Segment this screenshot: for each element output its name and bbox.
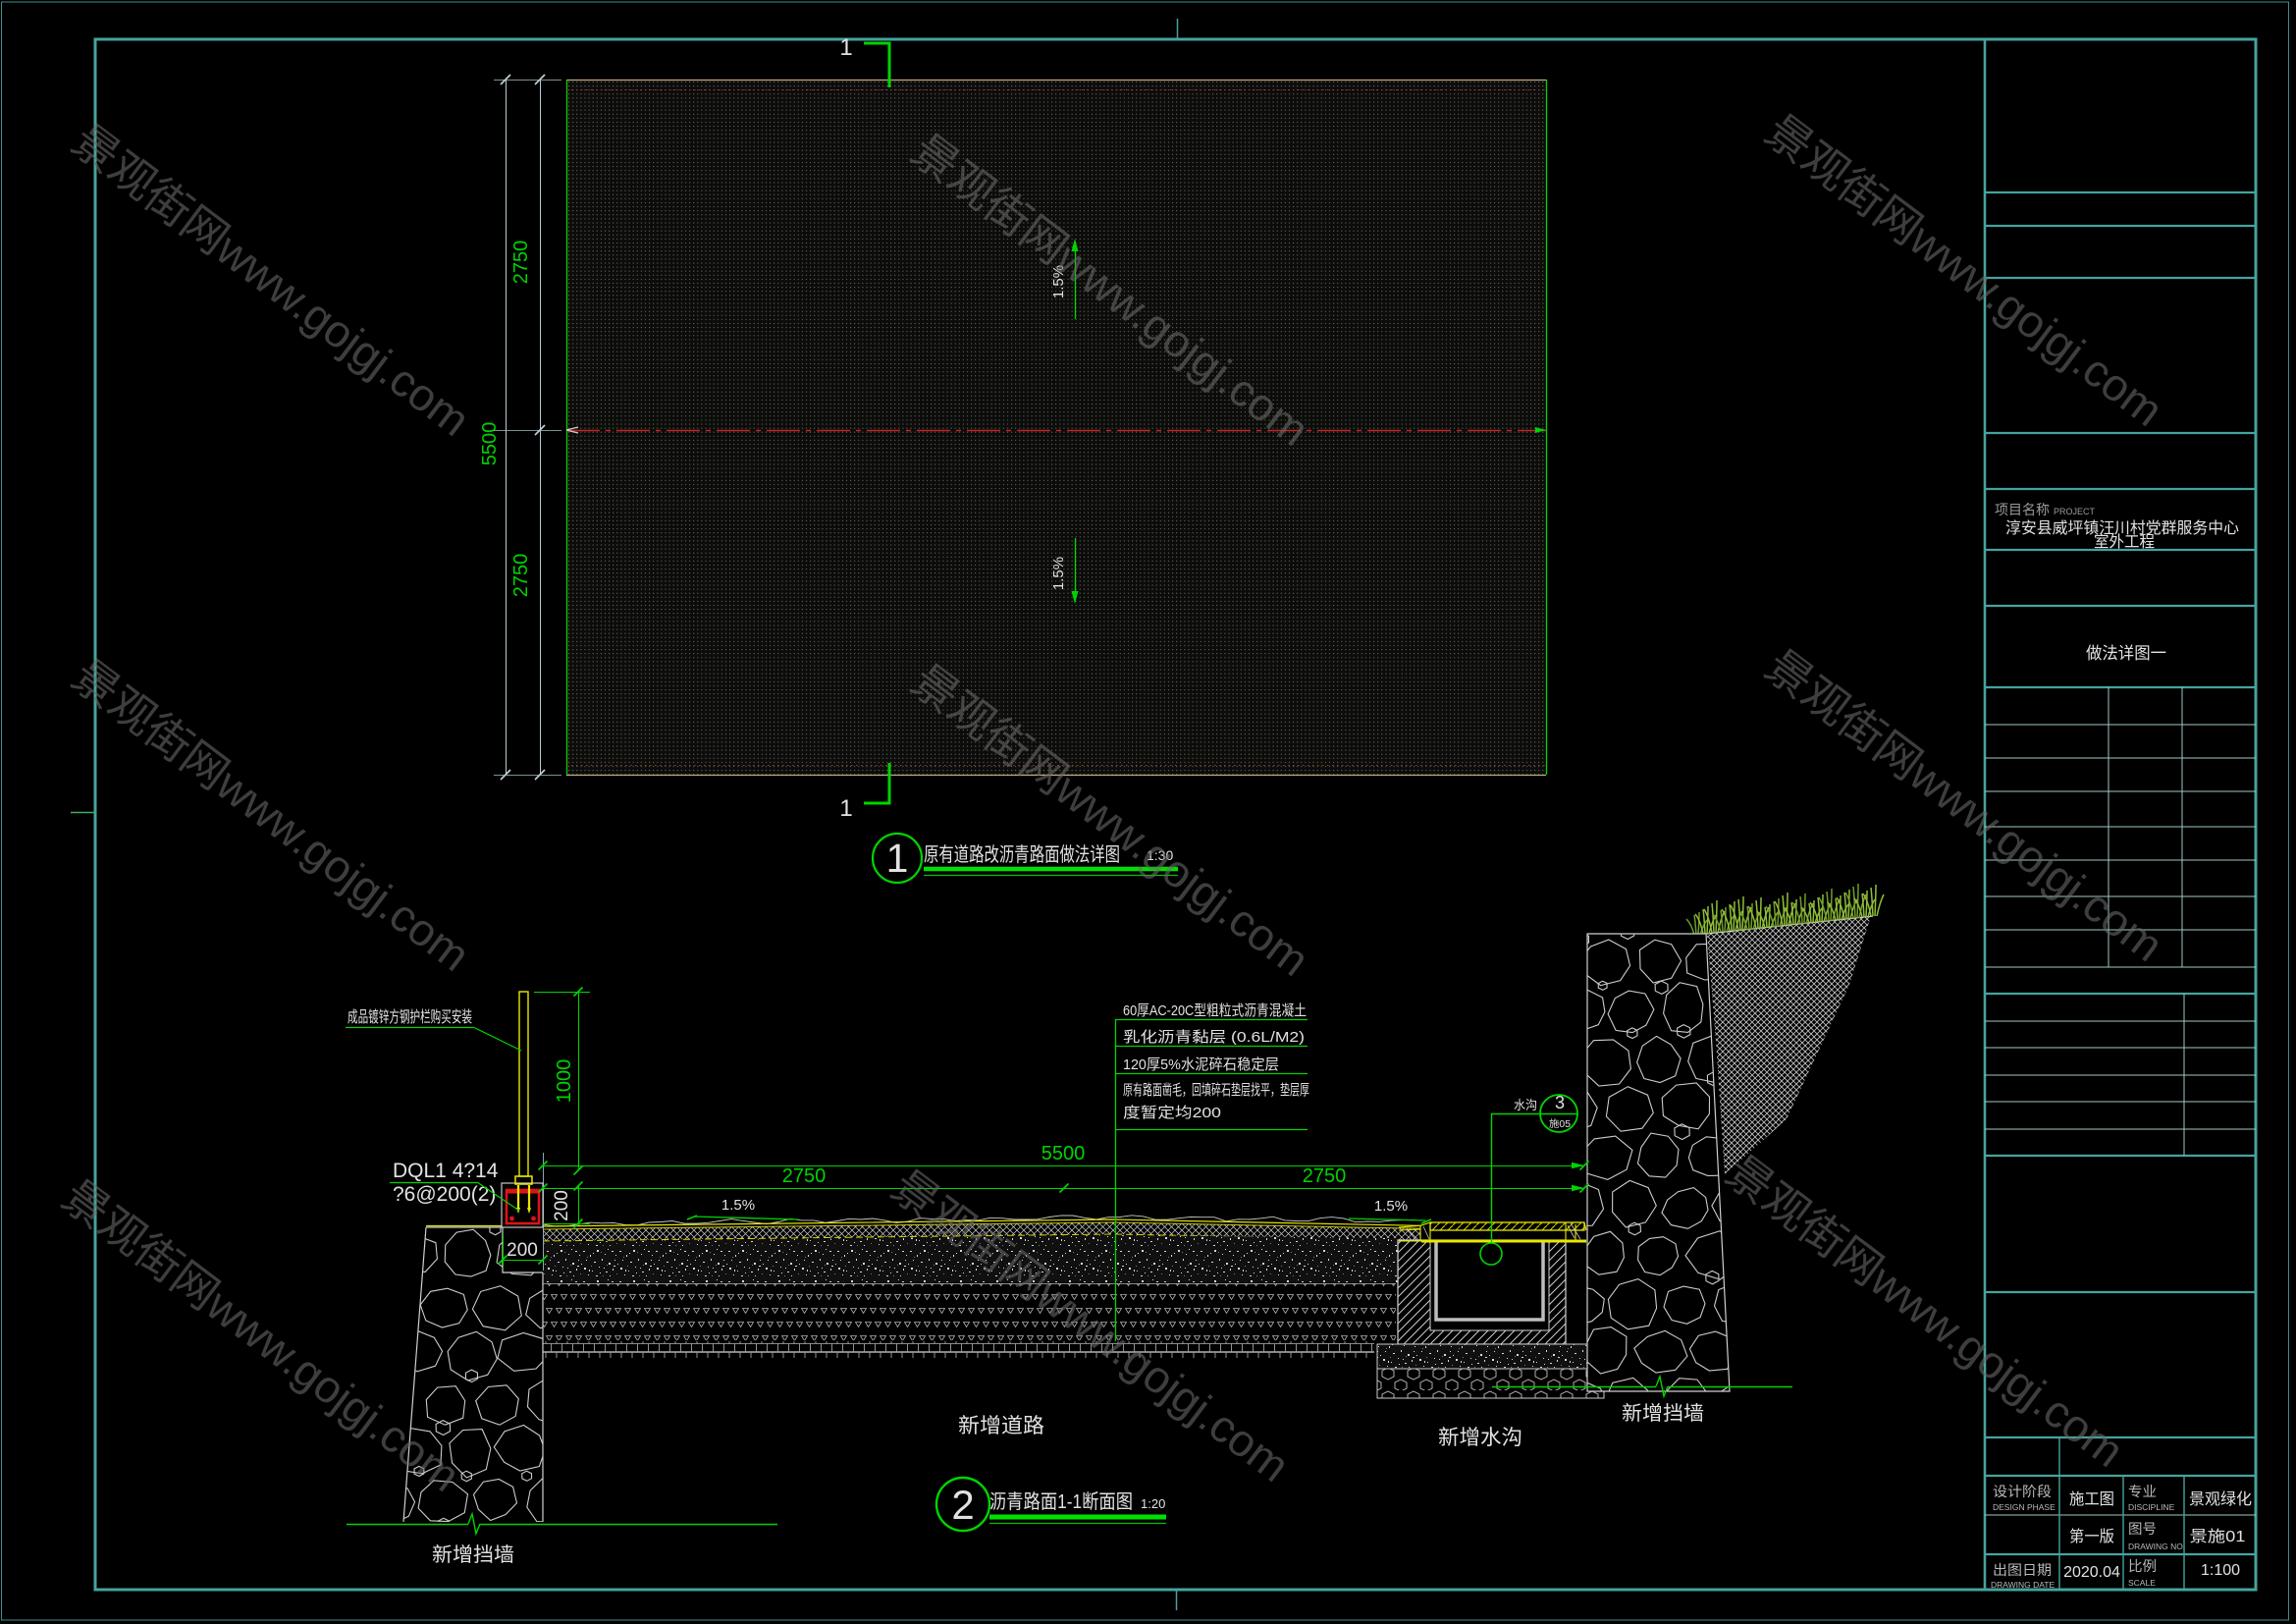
svg-text:出图日期: 出图日期 (1993, 1562, 2052, 1578)
svg-text:1: 1 (839, 34, 852, 61)
svg-text:施工图: 施工图 (2069, 1490, 2114, 1508)
svg-text:1.5%: 1.5% (1050, 557, 1067, 590)
svg-text:DESIGN PHASE: DESIGN PHASE (1993, 1502, 2056, 1512)
svg-text:景观绿化: 景观绿化 (2189, 1490, 2252, 1508)
svg-text:1: 1 (886, 836, 909, 881)
svg-text:新增道路: 新增道路 (958, 1415, 1044, 1437)
svg-text:2: 2 (951, 1482, 974, 1528)
svg-text:60厚AC-20C型粗粒式沥青混凝土: 60厚AC-20C型粗粒式沥青混凝土 (1123, 1002, 1307, 1019)
svg-text:景观街网www.gojgj.com: 景观街网www.gojgj.com (63, 649, 479, 981)
svg-text:DRAWING DATE: DRAWING DATE (1991, 1580, 2055, 1590)
svg-text:乳化沥青黏层 (0.6L/M2): 乳化沥青黏层 (0.6L/M2) (1123, 1029, 1305, 1046)
svg-text:比例: 比例 (2128, 1558, 2157, 1574)
svg-text:5500: 5500 (479, 422, 501, 466)
svg-text:原有路面凿毛，回填碎石垫层找平，垫层厚: 原有路面凿毛，回填碎石垫层找平，垫层厚 (1123, 1082, 1309, 1099)
svg-text:2750: 2750 (510, 554, 532, 598)
svg-text:专业: 专业 (2128, 1484, 2157, 1499)
svg-text:200: 200 (552, 1190, 572, 1221)
svg-text:景观街网www.gojgj.com: 景观街网www.gojgj.com (63, 114, 479, 446)
svg-text:景观街网www.gojgj.com: 景观街网www.gojgj.com (53, 1169, 469, 1501)
svg-text:PROJECT: PROJECT (2054, 507, 2096, 516)
svg-text:2750: 2750 (1303, 1165, 1347, 1187)
svg-text:设计阶段: 设计阶段 (1993, 1484, 2052, 1499)
svg-text:水沟: 水沟 (1514, 1098, 1537, 1112)
svg-text:1:20: 1:20 (1141, 1496, 1165, 1511)
svg-text:1:100: 1:100 (2201, 1562, 2240, 1579)
svg-text:1.5%: 1.5% (1374, 1198, 1408, 1215)
svg-text:景施01: 景施01 (2190, 1528, 2246, 1545)
svg-text:新增水沟: 新增水沟 (1438, 1427, 1522, 1449)
svg-text:成品镀锌方钢护栏购买安装: 成品镀锌方钢护栏购买安装 (347, 1008, 472, 1026)
svg-text:做法详图一: 做法详图一 (2086, 644, 2166, 663)
svg-text:DQL1 4?14: DQL1 4?14 (393, 1160, 499, 1182)
svg-text:1.5%: 1.5% (721, 1197, 755, 1214)
svg-text:DRAWING NO.: DRAWING NO. (2128, 1542, 2185, 1551)
svg-text:度暂定均200: 度暂定均200 (1123, 1105, 1221, 1121)
svg-text:DISCIPLINE: DISCIPLINE (2128, 1502, 2175, 1512)
svg-text:室外工程: 室外工程 (2094, 533, 2155, 551)
svg-text:2020.04: 2020.04 (2063, 1564, 2120, 1581)
svg-text:施05: 施05 (1549, 1117, 1571, 1130)
svg-text:第一版: 第一版 (2069, 1528, 2114, 1545)
svg-text:沥青路面1-1断面图: 沥青路面1-1断面图 (989, 1490, 1133, 1513)
svg-text:项目名称: 项目名称 (1995, 502, 2050, 517)
svg-text:新增挡墙: 新增挡墙 (1622, 1402, 1704, 1425)
svg-text:景观街网www.gojgj.com: 景观街网www.gojgj.com (1717, 1145, 2133, 1477)
svg-text:2750: 2750 (510, 241, 532, 285)
svg-text:3: 3 (1555, 1093, 1565, 1112)
svg-text:2750: 2750 (782, 1165, 827, 1187)
svg-text:?6@200(2): ?6@200(2) (393, 1183, 496, 1206)
svg-text:原有道路改沥青路面做法详图: 原有道路改沥青路面做法详图 (924, 843, 1120, 866)
svg-text:SCALE: SCALE (2128, 1578, 2156, 1588)
svg-text:5500: 5500 (1041, 1143, 1086, 1164)
svg-text:1: 1 (839, 795, 852, 822)
svg-text:新增挡墙: 新增挡墙 (432, 1543, 514, 1566)
svg-text:120厚5%水泥碎石稳定层: 120厚5%水泥碎石稳定层 (1123, 1056, 1279, 1073)
svg-text:图号: 图号 (2128, 1521, 2157, 1537)
svg-text:1000: 1000 (554, 1059, 575, 1104)
svg-text:景观街网www.gojgj.com: 景观街网www.gojgj.com (1756, 104, 2172, 436)
svg-text:200: 200 (507, 1240, 538, 1261)
